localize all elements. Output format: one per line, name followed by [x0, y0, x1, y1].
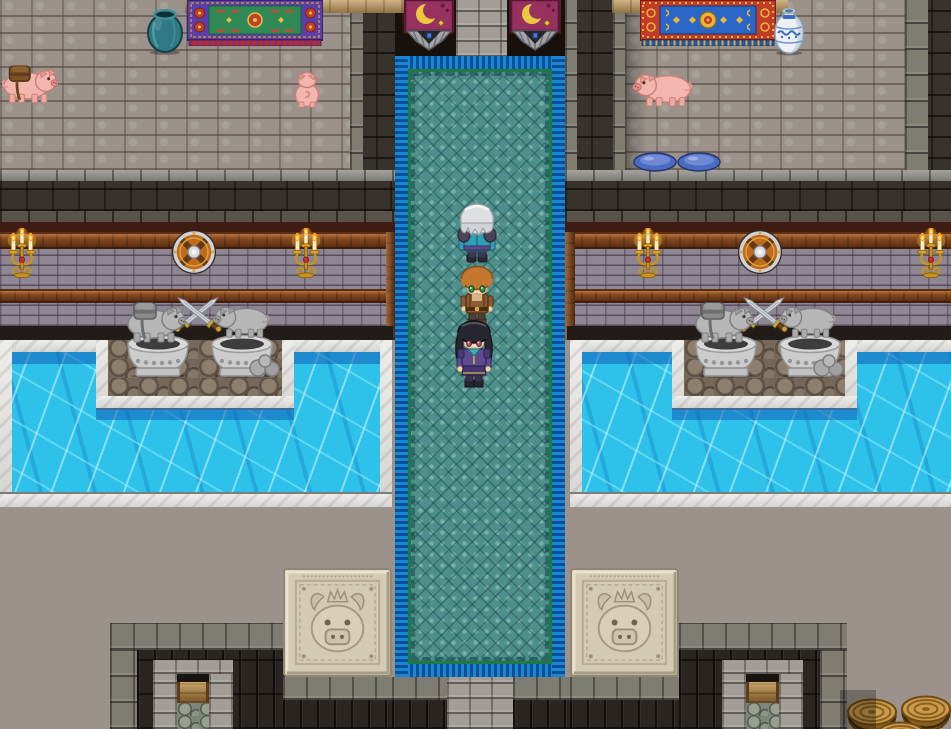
- pool-edge: [570, 340, 582, 505]
- alcove-lintel: [722, 660, 803, 674]
- wall-column-frame-a: [565, 0, 577, 180]
- tapestry-left: [187, 0, 323, 46]
- barrel-shadow: [840, 690, 876, 729]
- alcove-steps: [746, 703, 779, 729]
- water-shadow: [857, 352, 951, 364]
- pig-statue-left: [212, 301, 270, 341]
- pig-statue-pack-right: [694, 298, 754, 344]
- pool-edge: [0, 492, 392, 507]
- vase-teal[interactable]: [144, 6, 186, 56]
- wood-post-right: [565, 232, 575, 340]
- alcove-column: [209, 674, 233, 729]
- character-silver-hair[interactable]: [455, 203, 499, 265]
- dark-wall-left: [0, 181, 395, 211]
- alcove-right[interactable]: [722, 660, 803, 729]
- wall-shield-left: [171, 229, 217, 275]
- pig-room[interactable]: [630, 70, 694, 108]
- carpet-border: [552, 56, 565, 677]
- ledge-frame: [283, 677, 392, 700]
- piglet-rear[interactable]: [294, 70, 320, 108]
- barrel-3[interactable]: [872, 720, 930, 729]
- wall-cap2-right: [565, 211, 951, 222]
- alcove-dark: [177, 674, 209, 682]
- ledge-frame: [392, 677, 447, 700]
- feeding-bowl-2[interactable]: [676, 150, 722, 172]
- ledge-frame: [570, 677, 679, 700]
- wall-cap-right: [565, 170, 951, 181]
- bench-left[interactable]: [177, 682, 209, 703]
- pig-statue-pack-left: [126, 298, 186, 344]
- alcove-dark: [746, 674, 779, 682]
- candelabra-1: [4, 228, 40, 280]
- water-shadow: [582, 352, 672, 364]
- pig-crest-tile-left: [283, 568, 392, 677]
- pillar-bottom-center: [447, 677, 513, 729]
- wood-post-left: [386, 232, 395, 340]
- sunken-floor: [570, 700, 679, 729]
- alcove-frame: [679, 623, 847, 650]
- candelabra-4: [913, 228, 949, 280]
- alcove-frame: [110, 650, 137, 729]
- water-shadow: [12, 352, 96, 364]
- banner-crescent-right: [506, 0, 564, 52]
- pig-statue-right: [778, 301, 836, 341]
- pig-with-saddlebags[interactable]: [2, 60, 58, 106]
- carpet-border: [395, 56, 408, 677]
- alcove-column: [722, 674, 746, 729]
- alcove-steps: [177, 703, 209, 729]
- pool-left: [0, 340, 392, 505]
- feeding-bowl-1[interactable]: [632, 150, 678, 172]
- rock-pile-left: [248, 352, 284, 378]
- sunken-floor: [283, 700, 392, 729]
- wall-column-far-right-frame: [905, 0, 928, 180]
- wall-column-frame-b: [613, 0, 625, 180]
- candelabra-3: [630, 228, 666, 280]
- pool-edge: [380, 340, 392, 505]
- pig-crest-tile-right: [570, 568, 679, 677]
- alcove-frame: [110, 623, 285, 650]
- wall-cap-left: [0, 170, 395, 181]
- game-viewport[interactable]: [0, 0, 951, 729]
- pillar-top-center: [456, 0, 507, 57]
- wall-shield-right: [737, 229, 783, 275]
- dark-wall-right: [565, 181, 951, 211]
- sunken-floor: [513, 700, 570, 729]
- wall-cap2-left: [0, 211, 395, 222]
- alcove-lintel: [153, 660, 233, 674]
- alcove-left[interactable]: [153, 660, 233, 729]
- water-shadow: [96, 408, 294, 420]
- water-shadow: [672, 408, 857, 420]
- sunken-floor: [392, 700, 447, 729]
- character-orange-hair[interactable]: [455, 266, 499, 324]
- water-shadow: [294, 352, 380, 364]
- candelabra-2: [288, 228, 324, 280]
- bench-right[interactable]: [746, 682, 779, 703]
- pool-edge: [570, 492, 951, 507]
- rock-pile-right: [812, 352, 848, 378]
- banner-crescent-left: [400, 0, 458, 52]
- alcove-column: [779, 674, 803, 729]
- wall-column-left-frame: [350, 0, 363, 180]
- carpet-border: [395, 56, 565, 69]
- pool-edge: [0, 340, 12, 505]
- vase-porcelain[interactable]: [770, 6, 808, 56]
- character-black-hair[interactable]: [450, 320, 498, 392]
- carpet-border: [395, 664, 565, 677]
- tapestry-right: [640, 0, 776, 46]
- ledge-frame: [513, 677, 570, 700]
- alcove-column: [153, 674, 177, 729]
